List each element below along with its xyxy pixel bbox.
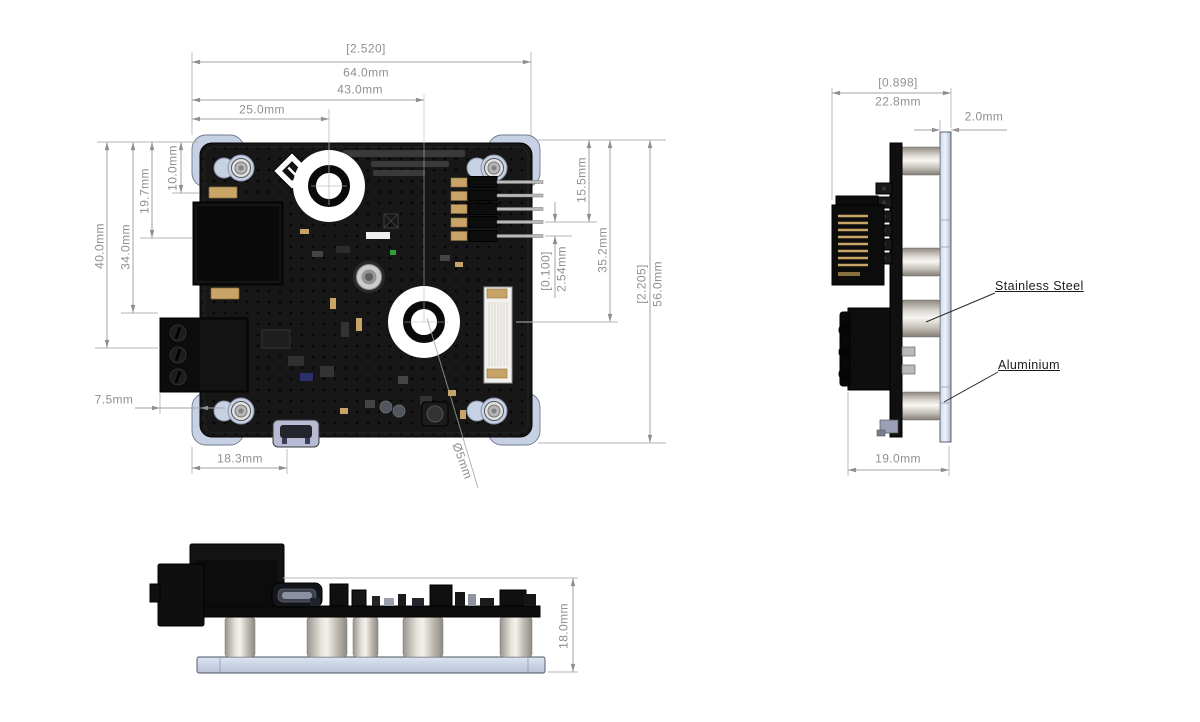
top-view (160, 135, 543, 447)
dim-top-pin-pitch-inches: [0.100] (540, 249, 553, 293)
dim-top-height-19-7: 19.7mm (139, 166, 152, 216)
material-label-aluminium: Aluminium (998, 358, 1060, 372)
front-view (150, 544, 545, 673)
dim-top-overall-width-inches: [2.520] (344, 43, 388, 56)
dim-top-overall-width-mm: 64.0mm (341, 67, 391, 80)
dim-side-overall-depth-inches: [0.898] (876, 77, 920, 90)
material-label-stainless-steel: Stainless Steel (995, 279, 1084, 293)
steel-standoffs-front (225, 617, 532, 657)
terminal-block (160, 318, 248, 392)
dim-top-usb-offset: 18.3mm (215, 453, 265, 466)
dim-top-width-25: 25.0mm (237, 104, 287, 117)
dim-top-overall-height-inches: [2.205] (636, 262, 649, 306)
dim-top-height-40: 40.0mm (94, 221, 107, 271)
steel-standoffs-side (902, 147, 940, 420)
ffc-connector (484, 287, 512, 383)
center-standoff (353, 261, 385, 293)
pcb-front (197, 606, 540, 617)
dim-top-height-15-5: 15.5mm (576, 155, 589, 205)
dim-top-height-10: 10.0mm (167, 143, 180, 193)
dim-top-width-43: 43.0mm (335, 84, 385, 97)
rj45-connector-side (832, 196, 884, 285)
rj45-connector (193, 187, 283, 299)
aluminium-plate-side (940, 132, 951, 442)
terminal-block-side (839, 308, 891, 390)
dim-side-depth-19: 19.0mm (873, 453, 923, 466)
dim-top-pin-pitch-mm: 2.54mm (556, 244, 569, 294)
technical-drawing-page: [2.520] 64.0mm 43.0mm 25.0mm 40.0mm 34.0… (0, 0, 1200, 722)
components-front (310, 584, 536, 606)
baseplate-front (197, 657, 545, 673)
dim-side-plate-thickness: 2.0mm (963, 111, 1006, 124)
dim-top-height-35-2: 35.2mm (597, 225, 610, 275)
micro-usb-connector (273, 420, 319, 447)
dim-front-overall-height: 18.0mm (558, 601, 571, 651)
dim-top-offset-7-5: 7.5mm (93, 394, 136, 407)
screws-side (902, 347, 915, 374)
dim-side-overall-depth-mm: 22.8mm (873, 96, 923, 109)
dim-top-overall-height-mm: 56.0mm (652, 259, 665, 309)
side-view (832, 132, 951, 442)
power-jack-front (150, 564, 204, 626)
dim-top-height-34: 34.0mm (120, 222, 133, 272)
